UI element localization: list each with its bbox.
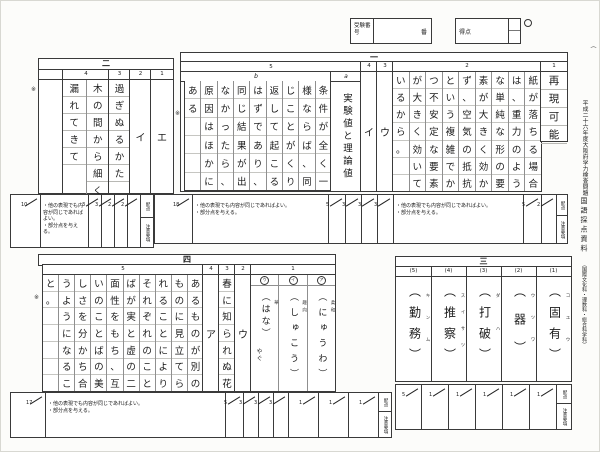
answer-cell: 抵 (459, 158, 475, 175)
sec4-col4-number: 4 (203, 265, 219, 275)
answer-cell: か (87, 131, 110, 148)
sec4-col4-body: ア (203, 275, 219, 391)
score-points: 1 (456, 392, 459, 398)
grid-column: 過ぎぬるかた (109, 80, 130, 193)
answer-cell: 原 (201, 81, 216, 99)
notes-label-text: 注意要項 (382, 416, 388, 434)
answer-cell: の (188, 325, 203, 342)
band-score-cell: 1 (529, 384, 558, 430)
grid-column: それぞれのこと (139, 275, 155, 391)
answer-cell: な (492, 72, 508, 89)
sec1-col1: 1再現可能 (540, 61, 568, 142)
grid-column: 木の間から細く (87, 80, 110, 199)
answer-cell: 要 (492, 175, 508, 191)
answer-cell: 空 (459, 106, 475, 123)
answer-cell: か (109, 148, 130, 165)
answer-cell: の (140, 342, 155, 359)
answer-cell: の (492, 158, 508, 175)
answer-cell: を (75, 308, 90, 325)
score-slash: 1 (429, 387, 447, 398)
sec4-col3-number: 3 (219, 265, 235, 275)
band-score-cell: 10 (10, 194, 42, 248)
circled-label: イ (289, 276, 298, 285)
slash-line (330, 198, 342, 206)
points-label: 配点 (141, 195, 153, 218)
answer-cell: 木 (87, 80, 110, 97)
notes-area: ・他の表現でも内容が同じであればよい。・部分点を与える。 (396, 203, 522, 216)
answer-cell: ら (87, 148, 110, 165)
sec3-item4: (4)（推察）スイサツ (430, 266, 467, 382)
answer-cell (43, 342, 58, 359)
circled-label: ア (317, 276, 326, 285)
answer-cell: 一 (316, 173, 331, 190)
points-notes-label-column: 配点注意要項 (378, 392, 392, 438)
answer-cell: て (63, 148, 86, 165)
score-points: 1 (429, 392, 432, 398)
score-points: 3 (239, 400, 242, 406)
grid-column: 紙が落ちる場合 (524, 72, 541, 191)
reading-subcolumn: イ（しゅこう）趣向 (278, 275, 306, 391)
answer-cell: と (43, 275, 58, 292)
sec3-item3-number: (3) (466, 267, 501, 277)
score-points: 2 (537, 202, 540, 208)
score-points: 3 (254, 400, 257, 406)
sec4-col1: 1ア（にゅうわ）柔和イ（しゅこう）趣向ウ（はな）華やぐ (250, 264, 336, 392)
score-points: 10 (21, 202, 27, 208)
answer-cell: く (410, 123, 426, 140)
score-points: 18 (173, 202, 179, 208)
sec3-item1-body: （固有）コユウ (536, 277, 571, 381)
answer-cell: 花 (219, 375, 235, 391)
grid-column: じことがくり (282, 81, 298, 190)
circled-label: ウ (260, 276, 269, 285)
score-slash: 18 (173, 197, 191, 208)
answer-cell: の (91, 359, 106, 376)
answer-cell: そ (140, 275, 155, 292)
notes-label-text: 注意要項 (144, 224, 150, 242)
kanji-answer: （器） (512, 285, 529, 369)
sec4-col1-body: ア（にゅうわ）柔和イ（しゅこう）趣向ウ（はな）華やぐ (251, 275, 335, 391)
sec2-col2: 2イ (129, 69, 152, 194)
answer-cell: の (91, 292, 106, 309)
answer-cell: 間 (87, 114, 110, 131)
band-score-cell: 1 (348, 392, 380, 438)
grid-column: しさを分かち合 (74, 275, 90, 391)
answer-cell: は (250, 81, 265, 99)
grid-column: が大きく効いて (409, 72, 426, 191)
answer-cell: ず (250, 99, 265, 117)
answer-cell: 春 (219, 275, 235, 292)
answer-cell: な (218, 81, 233, 99)
answer-cell: ぎ (109, 97, 130, 114)
grid-column: 原因はほかに (200, 81, 216, 190)
slash-line (273, 396, 285, 404)
grid-column: はずであり、 (249, 81, 265, 190)
kana-annotation: コユウ (564, 293, 570, 359)
answer-cell: 重 (509, 106, 525, 123)
answer-cell: く (476, 141, 492, 158)
answer-cell: 単 (492, 89, 508, 106)
answer-cell: れ (140, 325, 155, 342)
answer-cell: る (267, 173, 282, 190)
answer-cell: と (124, 325, 139, 342)
score-points: 5 (326, 202, 329, 208)
answer-cell: さ (75, 292, 90, 309)
examinee-number-box: 受験番号 番 (350, 18, 432, 44)
reading-answer: （はな） (259, 292, 272, 340)
answer-cell: ほ (201, 136, 216, 154)
sec4-col3-body: 春に知られぬ花 (219, 275, 235, 391)
answer-cell: れ (219, 342, 235, 359)
answer-cell: に (219, 292, 235, 309)
answer-cell: 素 (426, 175, 442, 191)
answer-cell: が (410, 72, 426, 89)
sec1-col1-number: 1 (541, 62, 567, 72)
answer-cell: 果 (234, 136, 249, 154)
sec4-col2-body: ウ (235, 275, 251, 391)
reading-subcolumn: ウ（はな）華やぐ (251, 275, 278, 391)
answer-cell: う (59, 308, 74, 325)
answer-cell: 安 (426, 106, 442, 123)
reading-subcolumn-label: ア (308, 275, 335, 286)
answer-cell: ず (459, 72, 475, 89)
points-label-text: 配点 (382, 398, 388, 407)
score-slash: 3 (374, 197, 392, 208)
score-points: 1 (483, 392, 486, 398)
answer-cell (393, 158, 409, 175)
paren-mark: （ (588, 42, 597, 48)
answer-cell: し (267, 99, 282, 117)
answer-cell: く (316, 154, 331, 172)
answer-cell: 雑 (443, 141, 459, 158)
grid-column: なかったら、 (217, 81, 233, 190)
answer-cell: く (283, 154, 298, 172)
answer-cell: 虚 (124, 342, 139, 359)
answer-cell: か (443, 175, 459, 191)
answer-cell: ぞ (140, 308, 155, 325)
answer-cell: 起 (267, 136, 282, 154)
slash-line (303, 396, 315, 404)
grid-column: ものに見立てら (171, 275, 187, 391)
answer-cell: 抗 (459, 175, 475, 191)
score-points: 1 (359, 400, 362, 406)
reference-mark: ※ (34, 294, 39, 301)
answer-cell: 別 (188, 359, 203, 376)
answer-cell: 漏 (63, 80, 86, 97)
sec2-col-margin-number (39, 70, 63, 80)
answer-cell: い (393, 72, 409, 89)
answer-cell: 純 (492, 106, 508, 123)
answer-cell: に (201, 173, 216, 190)
grid-column: 条件が全く一 (315, 81, 331, 190)
score-slash: 10 (21, 197, 39, 208)
answer-cell: の (124, 359, 139, 376)
answer-cell: か (476, 175, 492, 191)
score-slash: 2 (537, 197, 555, 208)
points-notes-label-column: 配点注意要項 (556, 194, 568, 244)
answer-cell: 知 (219, 308, 235, 325)
answer-cell: と (140, 375, 155, 391)
answer-cell: ち (75, 359, 90, 376)
answer-cell: が (476, 89, 492, 106)
answer-cell: で (443, 158, 459, 175)
notes-area: ・他の表現でも内容が同じであればよい。・部分点を与える。 (43, 203, 87, 236)
score-slash: 1 (537, 387, 555, 398)
score-box-midline (509, 30, 520, 31)
answer-cell: 合 (525, 175, 541, 191)
sec2-col4: 4木の間から細く漏れてきて (62, 69, 110, 194)
answer-cell (185, 154, 200, 172)
answer-cell: 件 (316, 99, 331, 117)
answer-cell: り (283, 173, 298, 190)
points-notes-label-column: 配点注意要項 (556, 384, 572, 430)
slash-line (406, 388, 418, 396)
answer-cell: な (426, 141, 442, 158)
score-label: 得点 (459, 27, 471, 36)
answer-cell: 。 (43, 292, 58, 309)
answer-cell: 力 (509, 123, 525, 140)
answer-cell: れ (156, 275, 171, 292)
score-points: 3 (374, 202, 377, 208)
band-notes-box: ・他の表現でも内容が同じであればよい。・部分点を与える。 (45, 392, 227, 438)
note-text: ・部分点を与える。 (195, 210, 327, 217)
grid-column: は、重力のよう (508, 72, 525, 191)
score-points: 3 (358, 202, 361, 208)
sec3-item4-body: （推察）スイサツ (431, 277, 466, 381)
sec4-col2-number: 2 (235, 265, 251, 275)
answer-cell: 二 (124, 375, 139, 391)
score-points: 1 (537, 392, 540, 398)
sec3-item2: (2)（器）ウツワ (500, 266, 537, 382)
answer-cell: じ (234, 99, 249, 117)
band-score-cell: 1 (502, 384, 531, 430)
answer-cell: 、 (107, 359, 122, 376)
answer-cell: と (283, 118, 298, 136)
sec1-col4-body: イ (361, 72, 377, 191)
reading-subcolumn-label: ウ (251, 275, 278, 286)
answer-cell: よ (59, 292, 74, 309)
answer-cell: 合 (75, 375, 90, 391)
answer-cell: と (443, 72, 459, 89)
slash-line (514, 388, 526, 396)
document-title-era: 平成二十六年度大阪府学力検査問題 (580, 100, 589, 196)
answer-cell: こ (91, 308, 106, 325)
answer-cell: り (156, 375, 171, 391)
answer-cell: と (91, 325, 106, 342)
answer-cell: に (156, 342, 171, 359)
kana-annotation: ダハ (494, 293, 500, 359)
grid-column: 木の間から細く (87, 80, 110, 199)
okurigana-suffix: やぐ (254, 348, 263, 362)
note-text: ・他の表現でも内容が同じであればよい。 (43, 203, 87, 223)
answer-cell: 様 (299, 81, 314, 99)
answer-cell: か (393, 106, 409, 123)
answer-cell: う (443, 106, 459, 123)
points-label-text: 配点 (561, 390, 567, 399)
answer-cell: い (443, 89, 459, 106)
circle-mark (524, 19, 532, 27)
notes-label: 注意要項 (557, 216, 567, 243)
band-notes-box: ・他の表現でも内容が同じであればよい。・部分点を与える。 (393, 194, 525, 244)
answer-cell: る (525, 141, 541, 158)
answer-cell: 、 (459, 89, 475, 106)
notes-label-text: 注意要項 (559, 221, 565, 239)
score-box-divider (508, 19, 509, 43)
band-score-cell: 18 (154, 194, 194, 244)
answer-cell: 可 (541, 108, 567, 126)
answer-cell: な (59, 342, 74, 359)
sec3-item1: (1)（固有）コユウ (535, 266, 572, 382)
sec4-col5-body: あるものが別のものに見立てられることによりそれぞれのことばが実と虚の二面性をもち… (43, 275, 203, 391)
answer-cell: 複 (443, 123, 459, 140)
sec1-col2: 2紙が落ちる場合は、重力のような単純な形の要素が大きく効かず、空気の抵抗という複… (392, 61, 542, 192)
score-points: 5 (224, 400, 227, 406)
slash-line (333, 396, 345, 404)
answer-cell: 定 (426, 123, 442, 140)
reading-answer: （にゅうわ） (315, 292, 328, 384)
answer-cell: こ (59, 375, 74, 391)
grid-column: 漏れてきて (63, 80, 86, 199)
grid-column: 返して起こる (266, 81, 282, 190)
answer-cell: る (393, 89, 409, 106)
answer-cell: も (107, 325, 122, 342)
answer-cell: 効 (476, 158, 492, 175)
answer-cell: の (459, 141, 475, 158)
band-score-cell: 1 (421, 384, 450, 430)
sec4-col1-number: 1 (251, 265, 335, 275)
answer-cell (393, 175, 409, 191)
answer-cell: う (59, 275, 74, 292)
answer-cell: 現 (541, 90, 567, 108)
answer-cell: 全 (316, 136, 331, 154)
answer-cell: と (156, 325, 171, 342)
score-points: 3 (95, 202, 98, 208)
reading-answer: （しゅこう） (287, 292, 300, 384)
sec2-col3-body: 過ぎぬるかた (109, 80, 130, 193)
answer-cell (43, 359, 58, 376)
answer-cell: 立 (172, 342, 187, 359)
score-points: 17 (26, 400, 32, 406)
answer-cell: ら (172, 375, 187, 391)
reading-subcolumn-body: （にゅうわ）柔和 (308, 286, 335, 391)
answer-cell: の (188, 375, 203, 391)
answer-cell: の (172, 292, 187, 309)
grid-column: 素が大きく効か (475, 72, 492, 191)
answer-cell: こ (140, 359, 155, 376)
points-label: 配点 (557, 385, 571, 404)
score-slash: 3 (269, 395, 287, 406)
sec1-col2-number: 2 (393, 62, 541, 72)
band-score-cell: 1 (448, 384, 477, 430)
answer-cell: に (172, 308, 187, 325)
answer-cell: た (218, 136, 233, 154)
note-text: ・部分点を与える。 (48, 408, 224, 415)
points-label-text: 配点 (559, 201, 565, 210)
answer-cell: る (188, 292, 203, 309)
slash-line (487, 388, 499, 396)
slash-line (363, 396, 375, 404)
grid-column: と。 (43, 275, 58, 391)
sec4-col5-number: 5 (43, 265, 203, 275)
score-points: 2 (121, 202, 124, 208)
sec2-col2-body: イ (130, 80, 151, 193)
answer-cell: 、 (509, 89, 525, 106)
answer-cell: ら (393, 123, 409, 140)
band-score-cell: 1 (475, 384, 504, 430)
sec2-col3-number: 3 (109, 70, 130, 80)
reading-subcolumn-label: イ (279, 275, 306, 286)
answer-cell: 形 (492, 141, 508, 158)
answer-cell: 条 (316, 81, 331, 99)
answer-cell: 紙 (525, 72, 541, 89)
answer-cell: 落 (525, 106, 541, 123)
answer-cell: 同 (299, 173, 314, 190)
answer-cell: ぬ (109, 114, 130, 131)
answer-cell: ら (299, 118, 314, 136)
answer-cell: り (250, 154, 265, 172)
answer-cell: 見 (172, 325, 187, 342)
sec2-col4-number: 4 (63, 70, 109, 80)
note-text: ・部分点を与える。 (396, 210, 522, 217)
band-score-cell: 17 (10, 392, 47, 438)
note-text: ・部分点を与える。 (43, 223, 87, 236)
grid-column: 再現可能 (541, 72, 567, 144)
slash-line (378, 198, 390, 206)
grid-column: 同じ結果が出 (233, 81, 249, 190)
kana-annotation: キンム (424, 293, 430, 359)
answer-cell: あ (250, 136, 265, 154)
sec3-item5: (5)（勤務）キンム (395, 266, 432, 382)
answer-cell: て (63, 114, 86, 131)
slash-line (433, 388, 445, 396)
slash-line (125, 198, 137, 206)
answer-cell: よ (156, 359, 171, 376)
answer-cell: 気 (459, 123, 475, 140)
answer-cell: き (63, 131, 86, 148)
kanji-source-annotation: 趣向 (301, 300, 307, 315)
band-score-cell: 1 (288, 392, 320, 438)
answer-cell: て (410, 175, 426, 191)
answer-cell: れ (63, 97, 86, 114)
answer-text: イ (361, 72, 377, 191)
answer-cell: き (476, 123, 492, 140)
sec2-col3: 3過ぎぬるかた (108, 69, 131, 194)
slash-line (346, 198, 358, 206)
reading-subcolumn-body: （はな）華やぐ (251, 286, 278, 391)
answer-cell: 分 (75, 325, 90, 342)
answer-cell: き (410, 106, 426, 123)
grid-column: ず、空気の抵抗 (458, 72, 475, 191)
sec3-item4-number: (4) (431, 267, 466, 277)
sec1-col5b-grid: 条件が全く一様ならば、同じことがくり返して起こるはずであり、同じ結果が出なかった… (184, 81, 332, 191)
answer-cell: っ (218, 118, 233, 136)
answer-cell: か (75, 342, 90, 359)
slash-line (541, 388, 553, 396)
sec2-col2-number: 2 (130, 70, 151, 80)
points-label-text: 配点 (144, 202, 150, 211)
grid-column: な単純な形の要 (491, 72, 508, 191)
score-points: 2 (108, 202, 111, 208)
notes-area: ・他の表現でも内容が同じであればよい。・部分点を与える。 (195, 203, 327, 216)
score-slash: 2 (121, 197, 139, 208)
answer-text: ウ (235, 275, 251, 391)
document-title-subject: 国語採点資料 (579, 197, 589, 254)
answer-cell: 互 (107, 375, 122, 391)
answer-cell: て (267, 118, 282, 136)
grid-column: いのことばの美 (90, 275, 106, 391)
answer-cell: ら (218, 154, 233, 172)
answer-cell: こ (156, 308, 171, 325)
